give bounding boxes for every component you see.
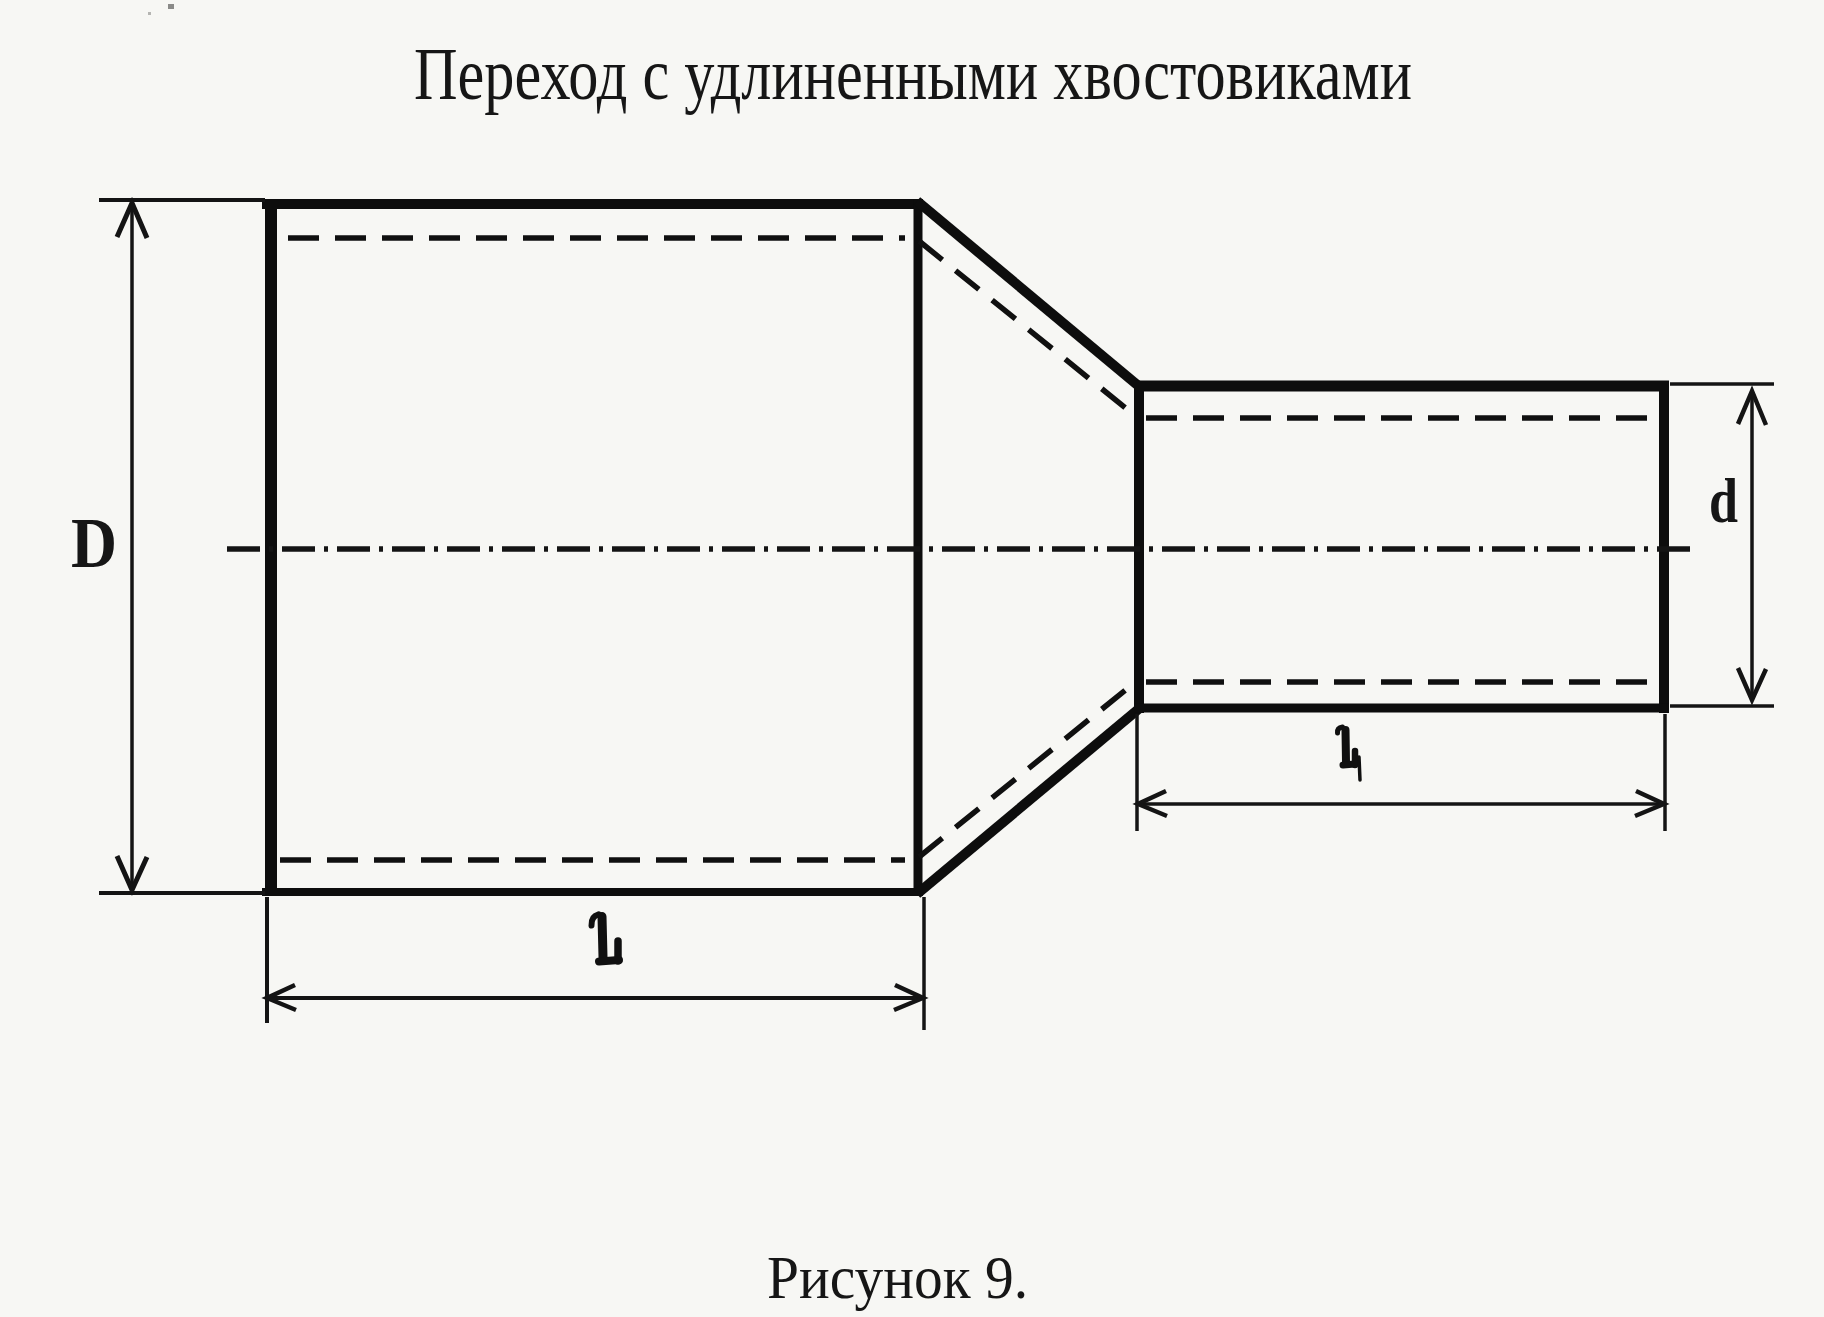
svg-text:Рисунок 9.: Рисунок 9. — [767, 1244, 1028, 1311]
svg-text:Переход с удлиненными хвостови: Переход с удлиненными хвостовиками — [414, 32, 1412, 115]
svg-text:d: d — [1709, 466, 1738, 536]
svg-text:D: D — [71, 503, 117, 583]
